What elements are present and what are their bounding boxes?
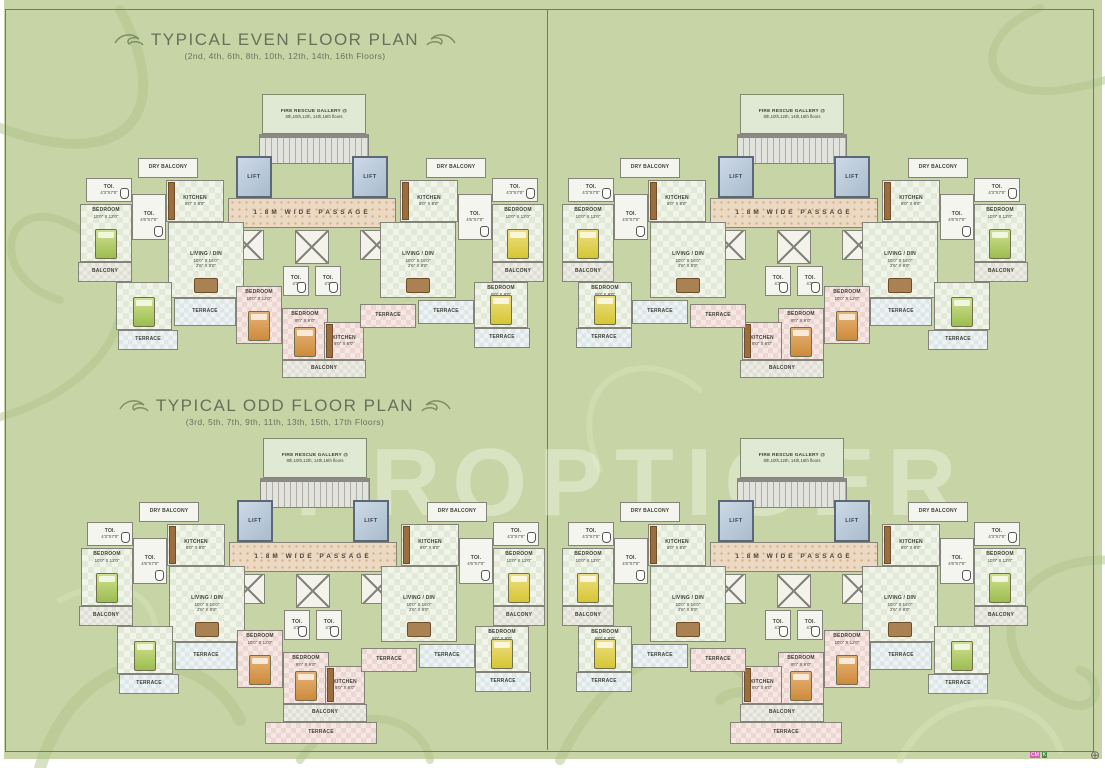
balcony-label: BALCONY [93, 613, 119, 619]
kitchen-label: 8'0" X 8'0" [334, 341, 354, 346]
toilet: TOI.4'6"X7'0" [459, 538, 493, 584]
kitchen: KITCHEN8'0" X 8'0" [742, 322, 782, 360]
duct [777, 574, 811, 608]
toilet-fixture-icon [329, 282, 338, 293]
dry-balcony: DRY BALCONY [139, 502, 199, 522]
bed [248, 311, 270, 341]
odd-floor-plan-title: TYPICAL ODD FLOOR PLAN [156, 396, 414, 416]
fire-rescue-gallery: FIRE RESCUE GALLERY @8th,10th,12th, 14th… [262, 94, 366, 134]
dining-table [406, 278, 430, 293]
dry-balcony: DRY BALCONY [427, 502, 487, 522]
dining-table [888, 622, 912, 637]
kitchen-label: 8'0" X 8'0" [185, 201, 205, 206]
terrace-label: TERRACE [376, 657, 402, 663]
title-flourish-left-icon [113, 31, 145, 49]
toilet: TOI.4'3"X7'0" [974, 522, 1020, 546]
living-dining: LIVING / DIN10'0" X 16'0"2'6" X 8'0" [650, 566, 726, 642]
terrace: TERRACE [690, 304, 746, 328]
kitchen-label: 8'0" X 8'0" [901, 201, 921, 206]
terrace: TERRACE [475, 672, 531, 692]
terrace: TERRACE [928, 330, 988, 350]
bed [951, 641, 973, 671]
balcony-label: BALCONY [505, 269, 531, 275]
living-dining-label: 2'6" X 8'0" [678, 263, 698, 268]
toilet: TOI.4'3"X7'0" [568, 522, 614, 546]
toilet-fixture-icon [636, 570, 645, 581]
terrace-label: TERRACE [489, 335, 515, 341]
bedroom-label: 10'0" X 12'0" [507, 558, 532, 563]
toilet-label: 4'6"X7'0" [622, 561, 640, 566]
odd-floor-plan-right-wing: FIRE RESCUE GALLERY @8th,10th,12th, 14th… [560, 436, 1028, 746]
living-dining: LIVING / DIN10'0" X 16'0"2'6" X 8'0" [381, 566, 457, 642]
balcony-label: BALCONY [506, 613, 532, 619]
terrace-label: TERRACE [192, 309, 218, 315]
bedroom: BEDROOM10'0" X 12'0" [236, 286, 282, 344]
lift-left: LIFT [834, 156, 870, 198]
toilet-label: 4'6"X7'0" [948, 561, 966, 566]
kitchen: KITCHEN8'0" X 8'0" [401, 524, 459, 566]
kitchen: KITCHEN8'0" X 8'0" [167, 524, 225, 566]
living-dining-label: 2'6" X 8'0" [890, 263, 910, 268]
living-dining: LIVING / DIN10'0" X 16'0"2'6" X 8'0" [650, 222, 726, 298]
living-dining-label: 2'6" X 8'0" [197, 607, 217, 612]
bedroom: BEDROOM9'0" X 9'0" [778, 652, 824, 704]
dry-balcony-label: DRY BALCONY [631, 509, 670, 515]
terrace-label: TERRACE [308, 730, 334, 736]
toilet: TOI.4'6"X7'0" [940, 538, 974, 584]
toilet: TOI.4'6"X7'0" [614, 538, 648, 584]
living-dining: LIVING / DIN10'0" X 16'0"2'6" X 8'0" [862, 222, 938, 298]
lift-left-label: LIFT [845, 518, 859, 524]
terrace: TERRACE [175, 642, 237, 670]
bedroom: BEDROOM10'0" X 12'0" [81, 548, 133, 606]
balcony-label: BALCONY [769, 710, 795, 716]
toilet-fixture-icon [298, 626, 307, 637]
print-mark-cm: CM [1030, 752, 1040, 758]
toilet-fixture-icon [155, 570, 164, 581]
lift-left: LIFT [236, 156, 272, 198]
fire-rescue-gallery-label: 8th,10th,12th, 14th,16th floors [285, 114, 342, 119]
bed [594, 295, 616, 325]
passage: 1.8M WIDE PASSAGE [710, 198, 878, 228]
terrace-label: TERRACE [135, 337, 161, 343]
toilet: TOI.4'6"X7'0" [133, 538, 167, 584]
kitchen: KITCHEN8'0" X 8'0" [325, 666, 365, 704]
bedroom [117, 626, 173, 674]
kitchen-label: 8'0" X 8'0" [667, 201, 687, 206]
dry-balcony: DRY BALCONY [620, 158, 680, 178]
bed [836, 311, 858, 341]
even-floor-plan-title: TYPICAL EVEN FLOOR PLAN [151, 30, 419, 50]
title-flourish-right-icon [425, 31, 457, 49]
living-dining: LIVING / DIN10'0" X 16'0"2'6" X 8'0" [380, 222, 456, 298]
fire-rescue-gallery-label: 8th,10th,12th, 14th,16th floors [286, 458, 343, 463]
toilet-label: 4'3"X7'0" [507, 534, 525, 539]
terrace: TERRACE [418, 300, 474, 324]
bed [95, 229, 117, 259]
toilet-fixture-icon [962, 226, 971, 237]
terrace: TERRACE [118, 330, 178, 350]
living-dining-label: 2'6" X 8'0" [890, 607, 910, 612]
terrace-label: TERRACE [647, 309, 673, 315]
terrace: TERRACE [360, 304, 416, 328]
terrace-label: TERRACE [591, 335, 617, 341]
toilet-label: 4'3"X7'0" [988, 190, 1006, 195]
kitchen: KITCHEN8'0" X 8'0" [648, 180, 706, 222]
dry-balcony-label: DRY BALCONY [631, 165, 670, 171]
bedroom-label: 10'0" X 12'0" [95, 558, 120, 563]
bed [836, 655, 858, 685]
bedroom [934, 626, 990, 674]
kitchen: KITCHEN8'0" X 8'0" [882, 524, 940, 566]
terrace: TERRACE [870, 298, 932, 326]
toilet-fixture-icon [120, 188, 129, 199]
terrace-label: TERRACE [136, 681, 162, 687]
terrace-label: TERRACE [945, 337, 971, 343]
toilet-fixture-icon [1008, 532, 1017, 543]
even-floor-plan-title-block: TYPICAL EVEN FLOOR PLAN (2nd, 4th, 6th, … [115, 30, 455, 61]
balcony: BALCONY [282, 360, 366, 378]
balcony-label: BALCONY [988, 613, 1014, 619]
bedroom-label: 10'0" X 12'0" [988, 558, 1013, 563]
bed [96, 573, 118, 603]
terrace: TERRACE [361, 648, 417, 672]
center-fold-divider [547, 9, 548, 750]
bedroom: BEDROOM10'0" X 12'0" [562, 204, 614, 262]
bed [577, 229, 599, 259]
passage: 1.8M WIDE PASSAGE [229, 542, 397, 572]
toilet-fixture-icon [1008, 188, 1017, 199]
bedroom-label: 10'0" X 12'0" [988, 214, 1013, 219]
bed [134, 641, 156, 671]
toilet-fixture-icon [779, 282, 788, 293]
lift-right: LIFT [352, 156, 388, 198]
living-dining-label: 2'6" X 8'0" [408, 263, 428, 268]
dining-table [888, 278, 912, 293]
balcony: BALCONY [492, 262, 544, 282]
toilet: TOI.4'3"X7'0" [492, 178, 538, 202]
balcony-label: BALCONY [92, 269, 118, 275]
bedroom: BEDROOM9'0" X 9'0" [578, 626, 632, 672]
toilet: TOI.4'3"X7'0" [974, 178, 1020, 202]
living-dining-label: 2'6" X 8'0" [196, 263, 216, 268]
bed [294, 327, 316, 357]
kitchen-label: 8'0" X 8'0" [752, 341, 772, 346]
dry-balcony: DRY BALCONY [620, 502, 680, 522]
toilet-label: 4'3"X7'0" [988, 534, 1006, 539]
lift-right: LIFT [353, 500, 389, 542]
toilet-fixture-icon [636, 226, 645, 237]
bed [989, 573, 1011, 603]
odd-floor-plan-subtitle: (3rd, 5th, 7th, 9th, 11th, 13th, 15th, 1… [115, 417, 455, 427]
kitchen-label: 8'0" X 8'0" [667, 545, 687, 550]
toilet-fixture-icon [811, 282, 820, 293]
dining-table [195, 622, 219, 637]
bedroom-label: 9'0" X 9'0" [296, 662, 316, 667]
dining-table [676, 278, 700, 293]
lift-right-label: LIFT [363, 174, 377, 180]
lift-right-label: LIFT [729, 518, 743, 524]
passage-label: 1.8M WIDE PASSAGE [253, 209, 370, 216]
registration-mark-icon: ⊕ [1090, 748, 1100, 762]
toilet-fixture-icon [602, 532, 611, 543]
toilet: TOI.4'3" [765, 610, 791, 640]
fire-rescue-gallery-label: 8th,10th,12th, 14th,16th floors [763, 458, 820, 463]
toilet-label: 4'6"X7'0" [948, 217, 966, 222]
bed [951, 297, 973, 327]
brochure-page: PROPTIGER TYPICAL EVEN FLOOR PLAN (2nd, … [0, 0, 1105, 768]
fire-rescue-gallery: FIRE RESCUE GALLERY @8th,10th,12th, 14th… [263, 438, 367, 478]
terrace-label: TERRACE [647, 653, 673, 659]
terrace: TERRACE [928, 674, 988, 694]
toilet-fixture-icon [121, 532, 130, 543]
lift-right: LIFT [718, 156, 754, 198]
bed [507, 229, 529, 259]
terrace: TERRACE [730, 722, 842, 744]
bedroom: BEDROOM10'0" X 12'0" [824, 286, 870, 344]
toilet: TOI.4'6"X7'0" [614, 194, 648, 240]
toilet: TOI.4'3" [283, 266, 309, 296]
toilet-label: 4'3"X7'0" [582, 534, 600, 539]
toilet-label: 4'6"X7'0" [467, 561, 485, 566]
dry-balcony: DRY BALCONY [908, 502, 968, 522]
toilet: TOI.4'3" [315, 266, 341, 296]
terrace-label: TERRACE [434, 653, 460, 659]
duct [295, 230, 329, 264]
toilet-fixture-icon [297, 282, 306, 293]
lift-left-label: LIFT [845, 174, 859, 180]
toilet-label: 4'6"X7'0" [140, 217, 158, 222]
bed [790, 327, 812, 357]
bedroom-label: 10'0" X 12'0" [835, 640, 860, 645]
bedroom-label: 9'0" X 9'0" [791, 318, 811, 323]
terrace: TERRACE [690, 648, 746, 672]
bed [295, 671, 317, 701]
passage: 1.8M WIDE PASSAGE [710, 542, 878, 572]
dry-balcony-label: DRY BALCONY [149, 165, 188, 171]
balcony-label: BALCONY [988, 269, 1014, 275]
lift-left-label: LIFT [248, 518, 262, 524]
toilet: TOI.4'3" [765, 266, 791, 296]
lift-right-label: LIFT [364, 518, 378, 524]
balcony-label: BALCONY [311, 366, 337, 372]
bedroom-label: 9'0" X 9'0" [791, 662, 811, 667]
bedroom: BEDROOM10'0" X 12'0" [493, 548, 545, 606]
bedroom [116, 282, 172, 330]
balcony: BALCONY [974, 262, 1028, 282]
toilet-fixture-icon [527, 532, 536, 543]
title-flourish-right-icon [420, 397, 452, 415]
terrace-label: TERRACE [375, 313, 401, 319]
bed [508, 573, 530, 603]
kitchen: KITCHEN8'0" X 8'0" [648, 524, 706, 566]
toilet-label: 4'3"X7'0" [100, 190, 118, 195]
lift-left: LIFT [237, 500, 273, 542]
bedroom: BEDROOM10'0" X 12'0" [492, 204, 544, 262]
toilet-fixture-icon [481, 570, 490, 581]
living-dining: LIVING / DIN10'0" X 16'0"2'6" X 8'0" [169, 566, 245, 642]
dry-balcony-label: DRY BALCONY [438, 509, 477, 515]
print-color-marks: CM K [1030, 752, 1047, 758]
balcony-label: BALCONY [575, 269, 601, 275]
terrace: TERRACE [474, 328, 530, 348]
balcony: BALCONY [974, 606, 1028, 626]
balcony-label: BALCONY [769, 366, 795, 372]
terrace: TERRACE [576, 328, 632, 348]
bedroom: BEDROOM10'0" X 12'0" [974, 548, 1026, 606]
dry-balcony: DRY BALCONY [138, 158, 198, 178]
toilet: TOI.4'3" [316, 610, 342, 640]
bed [594, 639, 616, 669]
terrace: TERRACE [265, 722, 377, 744]
toilet-fixture-icon [330, 626, 339, 637]
kitchen-label: 8'0" X 8'0" [335, 685, 355, 690]
bed [491, 639, 513, 669]
terrace-label: TERRACE [705, 657, 731, 663]
toilet: TOI.4'3" [797, 266, 823, 296]
terrace: TERRACE [119, 674, 179, 694]
balcony: BALCONY [283, 704, 367, 722]
dry-balcony-label: DRY BALCONY [150, 509, 189, 515]
bed [133, 297, 155, 327]
terrace-label: TERRACE [945, 681, 971, 687]
living-dining-label: 2'6" X 8'0" [678, 607, 698, 612]
toilet: TOI.4'3"X7'0" [86, 178, 132, 202]
balcony: BALCONY [493, 606, 545, 626]
bedroom-label: 10'0" X 12'0" [247, 296, 272, 301]
bed [790, 671, 812, 701]
toilet: TOI.4'3" [284, 610, 310, 640]
terrace-label: TERRACE [193, 653, 219, 659]
bedroom: BEDROOM9'0" X 9'0" [282, 308, 328, 360]
kitchen: KITCHEN8'0" X 8'0" [400, 180, 458, 222]
odd-floor-plan-left-wing: FIRE RESCUE GALLERY @8th,10th,12th, 14th… [79, 436, 547, 746]
bedroom: BEDROOM9'0" X 9'0" [474, 282, 528, 328]
bedroom-label: 10'0" X 12'0" [248, 640, 273, 645]
terrace-label: TERRACE [888, 653, 914, 659]
terrace: TERRACE [870, 642, 932, 670]
toilet-fixture-icon [962, 570, 971, 581]
balcony: BALCONY [562, 262, 614, 282]
dry-balcony: DRY BALCONY [426, 158, 486, 178]
kitchen: KITCHEN8'0" X 8'0" [166, 180, 224, 222]
passage: 1.8M WIDE PASSAGE [228, 198, 396, 228]
dry-balcony-label: DRY BALCONY [919, 509, 958, 515]
toilet: TOI.4'3" [797, 610, 823, 640]
balcony: BALCONY [740, 360, 824, 378]
print-mark-k: K [1042, 752, 1047, 758]
terrace: TERRACE [632, 644, 688, 668]
toilet-fixture-icon [526, 188, 535, 199]
living-dining: LIVING / DIN10'0" X 16'0"2'6" X 8'0" [862, 566, 938, 642]
toilet-fixture-icon [811, 626, 820, 637]
dining-table [407, 622, 431, 637]
fire-rescue-gallery: FIRE RESCUE GALLERY @8th,10th,12th, 14th… [740, 438, 844, 478]
toilet: TOI.4'6"X7'0" [940, 194, 974, 240]
kitchen-label: 8'0" X 8'0" [186, 545, 206, 550]
bedroom [934, 282, 990, 330]
passage-label: 1.8M WIDE PASSAGE [254, 553, 371, 560]
lift-left: LIFT [834, 500, 870, 542]
balcony-label: BALCONY [312, 710, 338, 716]
dry-balcony-label: DRY BALCONY [437, 165, 476, 171]
toilet-fixture-icon [480, 226, 489, 237]
toilet-label: 4'6"X7'0" [466, 217, 484, 222]
toilet-fixture-icon [154, 226, 163, 237]
toilet: TOI.4'3"X7'0" [87, 522, 133, 546]
dry-balcony-label: DRY BALCONY [919, 165, 958, 171]
toilet: TOI.4'3"X7'0" [568, 178, 614, 202]
terrace-label: TERRACE [591, 679, 617, 685]
bed [989, 229, 1011, 259]
balcony: BALCONY [740, 704, 824, 722]
bedroom: BEDROOM9'0" X 9'0" [475, 626, 529, 672]
lift-left-label: LIFT [247, 174, 261, 180]
living-dining-label: 2'6" X 8'0" [409, 607, 429, 612]
balcony: BALCONY [78, 262, 132, 282]
toilet-label: 4'3"X7'0" [582, 190, 600, 195]
even-floor-plan-left-wing: FIRE RESCUE GALLERY @8th,10th,12th, 14th… [78, 92, 546, 380]
terrace: TERRACE [419, 644, 475, 668]
kitchen-label: 8'0" X 8'0" [752, 685, 772, 690]
terrace-label: TERRACE [705, 313, 731, 319]
bedroom: BEDROOM10'0" X 12'0" [974, 204, 1026, 262]
terrace-label: TERRACE [433, 309, 459, 315]
fire-rescue-gallery-label: 8th,10th,12th, 14th,16th floors [763, 114, 820, 119]
bedroom: BEDROOM9'0" X 9'0" [578, 282, 632, 328]
terrace: TERRACE [632, 300, 688, 324]
bed [577, 573, 599, 603]
lift-right: LIFT [718, 500, 754, 542]
bedroom: BEDROOM10'0" X 12'0" [824, 630, 870, 688]
balcony: BALCONY [79, 606, 133, 626]
bedroom-label: 10'0" X 12'0" [835, 296, 860, 301]
toilet: TOI.4'6"X7'0" [458, 194, 492, 240]
bed [249, 655, 271, 685]
kitchen-label: 8'0" X 8'0" [420, 545, 440, 550]
dining-table [676, 622, 700, 637]
toilet-fixture-icon [602, 188, 611, 199]
living-dining: LIVING / DIN10'0" X 16'0"2'6" X 8'0" [168, 222, 244, 298]
kitchen-label: 8'0" X 8'0" [419, 201, 439, 206]
bedroom-label: 10'0" X 12'0" [576, 558, 601, 563]
toilet-fixture-icon [779, 626, 788, 637]
kitchen: KITCHEN8'0" X 8'0" [324, 322, 364, 360]
duct [296, 574, 330, 608]
duct [777, 230, 811, 264]
kitchen: KITCHEN8'0" X 8'0" [882, 180, 940, 222]
balcony-label: BALCONY [575, 613, 601, 619]
even-floor-plan-right-wing: FIRE RESCUE GALLERY @8th,10th,12th, 14th… [560, 92, 1028, 380]
dining-table [194, 278, 218, 293]
toilet-label: 4'3"X7'0" [506, 190, 524, 195]
bedroom: BEDROOM10'0" X 12'0" [237, 630, 283, 688]
terrace: TERRACE [576, 672, 632, 692]
kitchen: KITCHEN8'0" X 8'0" [742, 666, 782, 704]
toilet-label: 4'6"X7'0" [622, 217, 640, 222]
terrace: TERRACE [174, 298, 236, 326]
terrace-label: TERRACE [888, 309, 914, 315]
bedroom: BEDROOM9'0" X 9'0" [778, 308, 824, 360]
bed [490, 295, 512, 325]
fire-rescue-gallery: FIRE RESCUE GALLERY @8th,10th,12th, 14th… [740, 94, 844, 134]
passage-label: 1.8M WIDE PASSAGE [735, 553, 852, 560]
toilet-label: 4'6"X7'0" [141, 561, 159, 566]
bedroom: BEDROOM9'0" X 9'0" [283, 652, 329, 704]
lift-right-label: LIFT [729, 174, 743, 180]
toilet-label: 4'3"X7'0" [101, 534, 119, 539]
bedroom: BEDROOM10'0" X 12'0" [80, 204, 132, 262]
